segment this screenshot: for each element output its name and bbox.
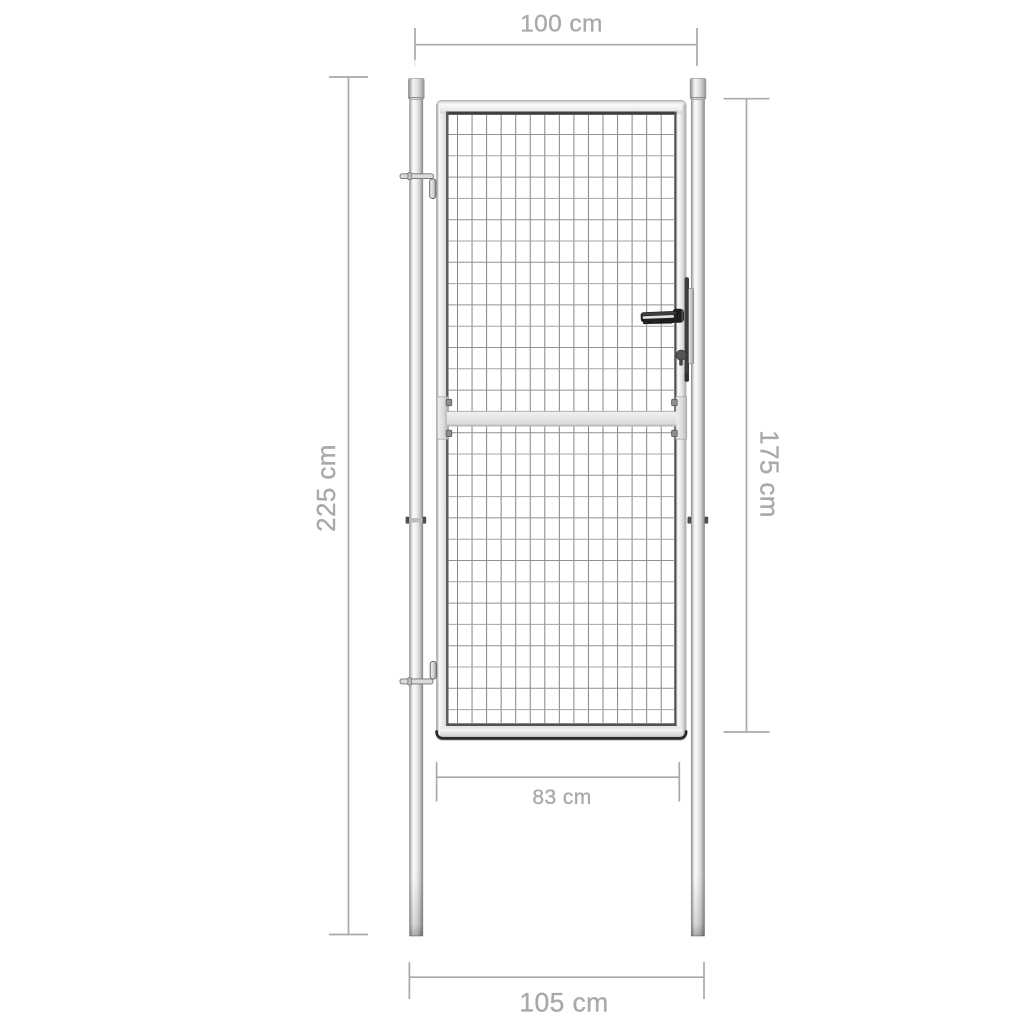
svg-text:225 cm: 225 cm <box>311 444 341 532</box>
svg-text:105 cm: 105 cm <box>519 988 608 1018</box>
svg-text:83 cm: 83 cm <box>532 786 591 809</box>
svg-text:100 cm: 100 cm <box>520 11 603 38</box>
svg-text:175 cm: 175 cm <box>755 430 785 518</box>
